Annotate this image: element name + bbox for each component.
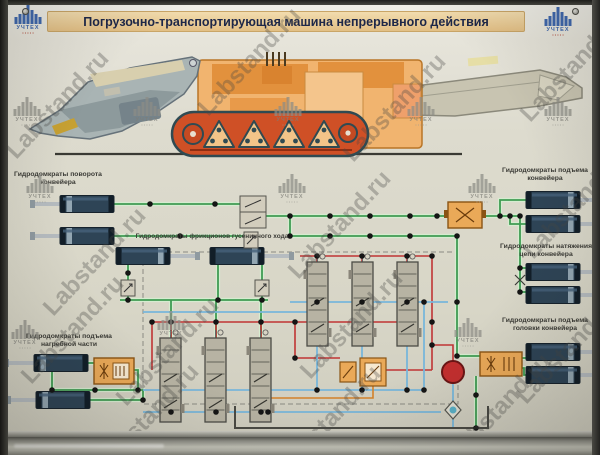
cylinders-conveyor-swing <box>30 196 114 245</box>
stand-artwork <box>0 0 600 455</box>
cylinders-boom-head-lift <box>526 344 600 384</box>
label-track-clutch-jacks: Гидродомкраты фрикционов гусеничного ход… <box>114 233 310 241</box>
filter <box>445 401 461 419</box>
lower-valve-bank <box>157 330 275 422</box>
machine-illustration <box>30 52 582 156</box>
cylinders-gathering-arm-lift <box>4 355 90 409</box>
label-boom-head-jacks: Гидродомкраты подъема головки конвейера <box>492 317 598 333</box>
gathering-arm-lock-block <box>94 358 134 384</box>
corner-screw <box>572 8 579 15</box>
frame-top <box>0 0 600 5</box>
stand-title: Погрузочно-транспортирующая машина непре… <box>83 15 489 29</box>
title-bar: Погрузочно-транспортирующая машина непре… <box>47 11 525 32</box>
label-gathering-arm-jacks: Гидродомкраты подъема нагребной части <box>10 333 128 349</box>
label-conveyor-swing-jacks: Гидродомкраты поворота конвейера <box>2 171 114 187</box>
clutch-valve-left <box>121 280 135 296</box>
flow-divider-block <box>444 202 486 228</box>
training-stand-photo: Гидродомкраты поворота конвейера Гидродо… <box>0 0 600 455</box>
cylinders-track-clutch <box>116 248 294 265</box>
clutch-valve-right <box>255 280 269 296</box>
corner-screw <box>22 8 29 15</box>
boom-head-lock-block <box>480 352 522 376</box>
hydraulic-schematic <box>4 192 600 431</box>
crawler-track <box>172 112 368 156</box>
relief-valve-block <box>340 358 386 386</box>
cylinders-chain-tension <box>526 264 600 304</box>
cylinders-conveyor-lift <box>526 192 600 233</box>
frame-left <box>0 0 8 455</box>
label-chain-tension-jacks: Гидродомкраты натяжения цепи конвейера <box>494 243 598 259</box>
pump <box>442 361 464 383</box>
frame-right <box>592 0 600 455</box>
ledge-highlight <box>14 444 164 448</box>
label-conveyor-lift-jacks: Гидродомкраты подъема конвейера <box>492 167 598 183</box>
